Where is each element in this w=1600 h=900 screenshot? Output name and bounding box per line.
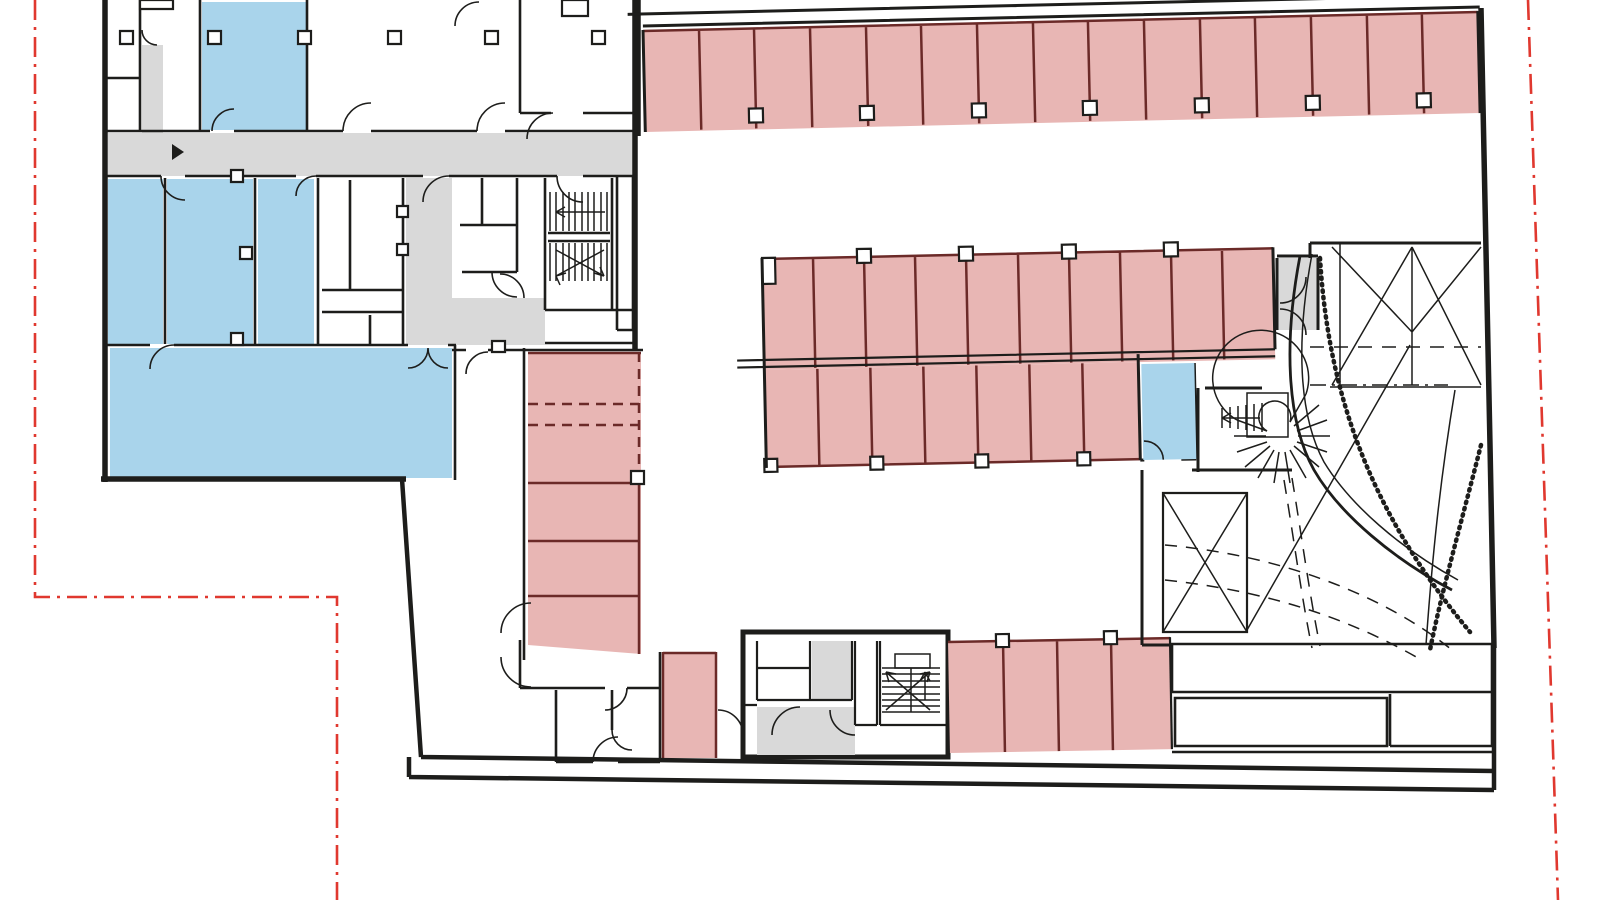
blue-room-1 bbox=[202, 2, 306, 130]
fan-stair-landing bbox=[1247, 393, 1288, 437]
parking-row-north bbox=[628, 0, 1482, 132]
southeast-room-walls bbox=[1172, 644, 1494, 752]
nw-stairwell bbox=[550, 192, 607, 285]
boundary-line-east bbox=[1528, 0, 1558, 900]
parking-column-west-column bbox=[631, 471, 644, 484]
parking-block-central bbox=[735, 240, 1278, 472]
corridor-l-fill bbox=[406, 178, 545, 345]
blue-room-4 bbox=[258, 179, 314, 345]
parking-stall-single bbox=[663, 652, 716, 758]
blue-room-central bbox=[1141, 363, 1196, 460]
ramp-top-box-bracing bbox=[1330, 243, 1481, 387]
ramp-curb-dotted-2 bbox=[1430, 445, 1481, 650]
blue-room-large bbox=[110, 348, 452, 478]
southeast-rooms bbox=[1172, 644, 1494, 752]
stair-treads bbox=[550, 192, 607, 281]
south-stairwell bbox=[743, 632, 948, 757]
corridor-main-fill bbox=[108, 133, 635, 176]
parking-column-west-fill bbox=[528, 352, 641, 654]
blue-room-3 bbox=[167, 179, 253, 344]
floor-plan-canvas bbox=[0, 0, 1600, 900]
east-outer-wall bbox=[1481, 8, 1494, 648]
ramp-arc-dashed-2 bbox=[1165, 580, 1418, 658]
ramp-x-box-diagonals bbox=[1163, 493, 1247, 632]
parking-column-west bbox=[528, 352, 644, 654]
blue-room-2 bbox=[108, 179, 163, 344]
southwest-walls bbox=[520, 640, 660, 762]
ramp-lane-dashes bbox=[1284, 478, 1320, 648]
floor-plan bbox=[0, 0, 1600, 900]
parking-row-south bbox=[948, 630, 1172, 753]
corridor-strip-fill bbox=[142, 45, 163, 133]
parking-row-south-fill bbox=[948, 637, 1172, 753]
